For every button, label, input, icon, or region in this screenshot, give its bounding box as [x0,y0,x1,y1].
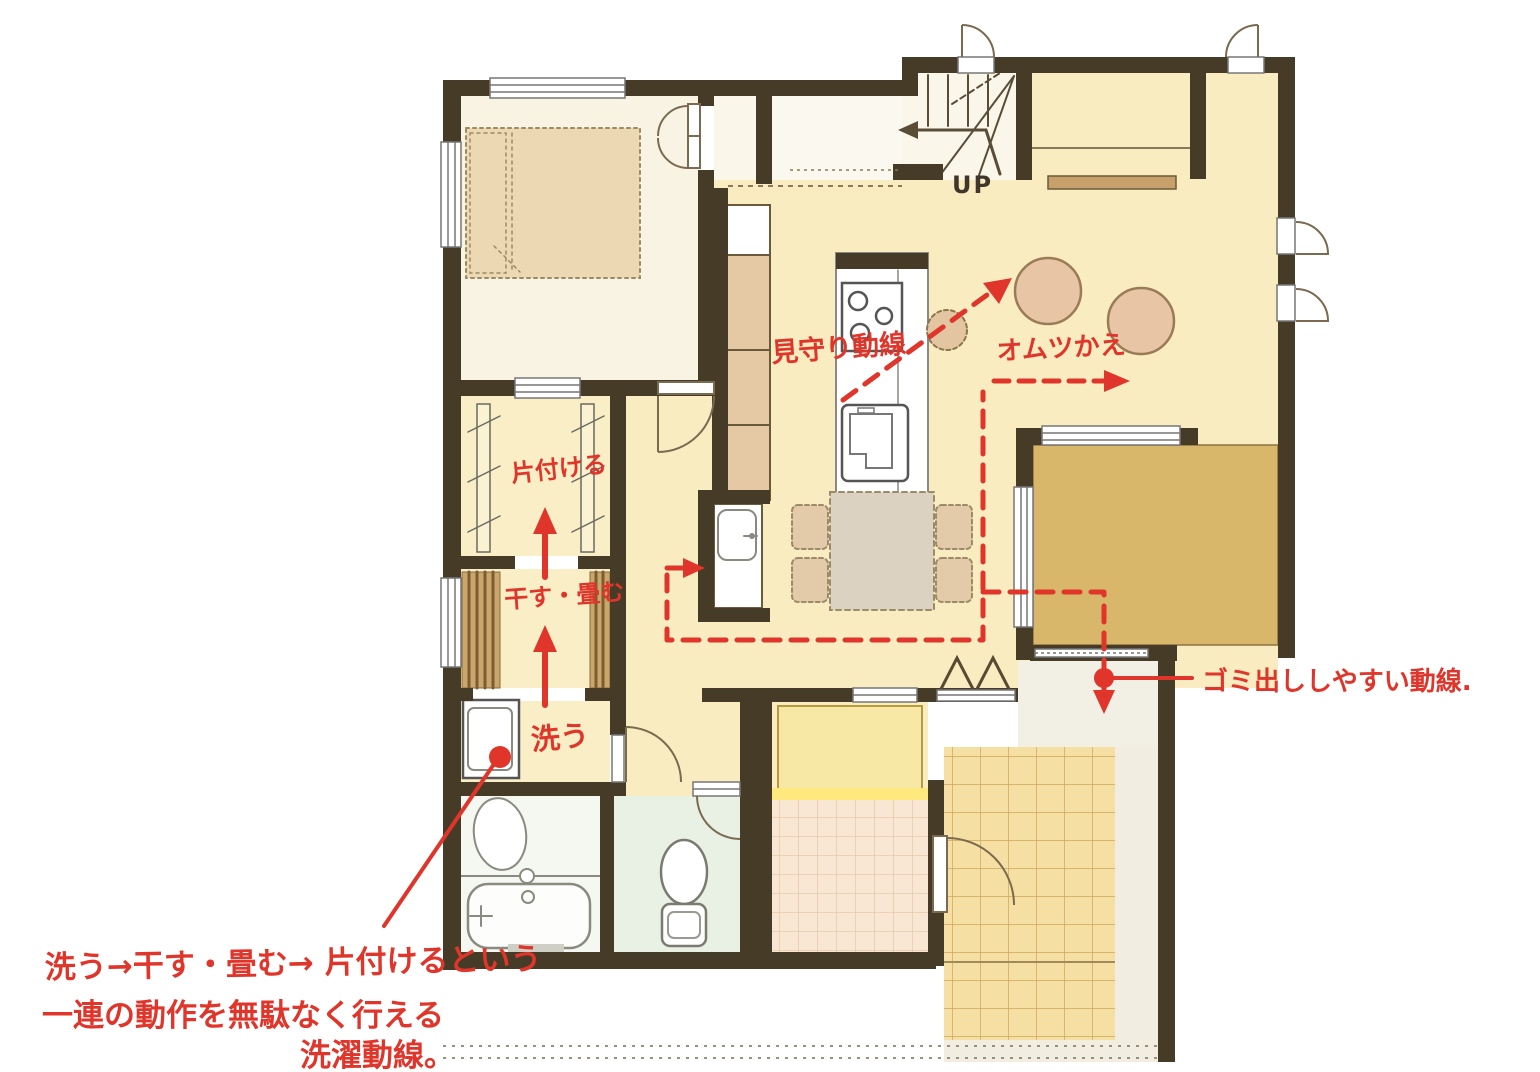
laundry-note-line2: 一連の動作を無駄なく行える [42,998,444,1034]
laundry-note-line1: 洗う→干す・畳む→ 片付けるという [45,941,542,986]
toilet [661,840,707,946]
dining-table [830,492,934,610]
kitchen-cabinets [722,205,770,500]
front-hall-floor [714,96,756,184]
storage-room [778,706,922,790]
gomi-callout-dot [1094,668,1114,688]
bed [466,128,640,278]
tatami-room-floor [1033,445,1278,645]
dining-chair [792,505,828,549]
tv-board [1048,176,1176,189]
ldk-floor-upper [1016,73,1278,180]
kitchen-counter-edge [836,253,928,269]
dining-chair [792,558,828,602]
arau-label: 洗う [530,718,591,757]
porch-strip [1115,747,1158,1062]
pantry-floor [772,96,902,184]
kitchen-sink [842,405,908,481]
corridor-lower-floor [626,688,740,796]
washbasin [714,504,762,608]
round-rug [1015,258,1081,324]
entrance-grid [944,747,1115,1040]
gomi-label: ゴミ出ししやすい動線. [1202,666,1472,697]
kitchen-island [836,253,928,495]
storage-step [772,788,928,800]
shoe-closet-grid [772,800,928,952]
laundry-note-line3: 洗濯動線。 [300,1038,455,1072]
floor-plan-page: UP 見守り動線 オムツかえ ゴミ出ししやすい動線. 片付ける 干す・畳む 洗う… [0,0,1540,1072]
dining-chair [936,505,972,549]
dining-chair [936,558,972,602]
stairs-up-label: UP [952,171,993,199]
stairs-floor [902,73,1016,180]
floor-plan: UP 見守り動線 オムツかえ ゴミ出ししやすい動線. 片付ける 干す・畳む 洗う… [0,0,1540,1072]
